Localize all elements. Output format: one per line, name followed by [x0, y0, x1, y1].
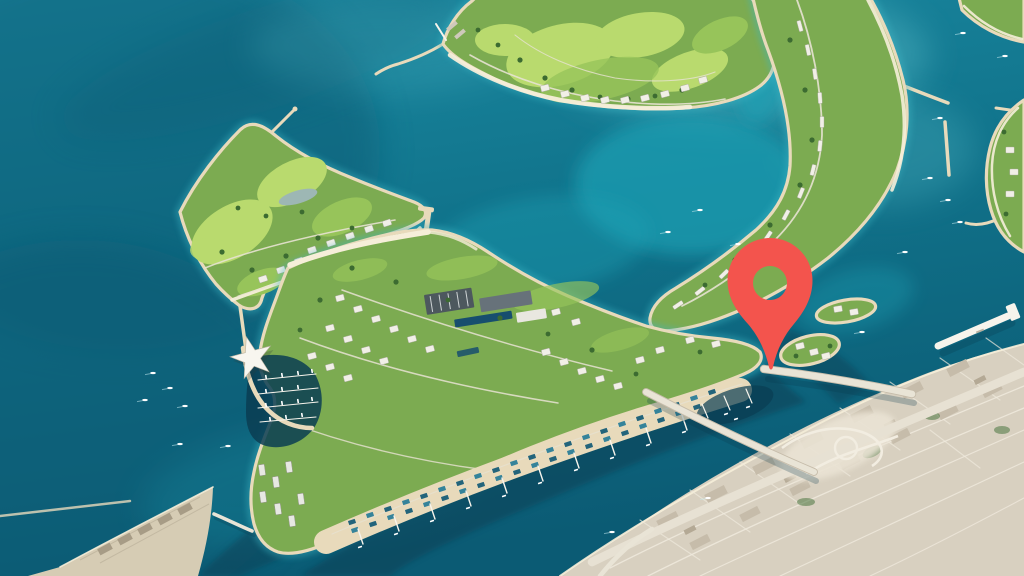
aerial-map-view: Aerial 3D rendering of a coastal island …	[0, 0, 1024, 576]
